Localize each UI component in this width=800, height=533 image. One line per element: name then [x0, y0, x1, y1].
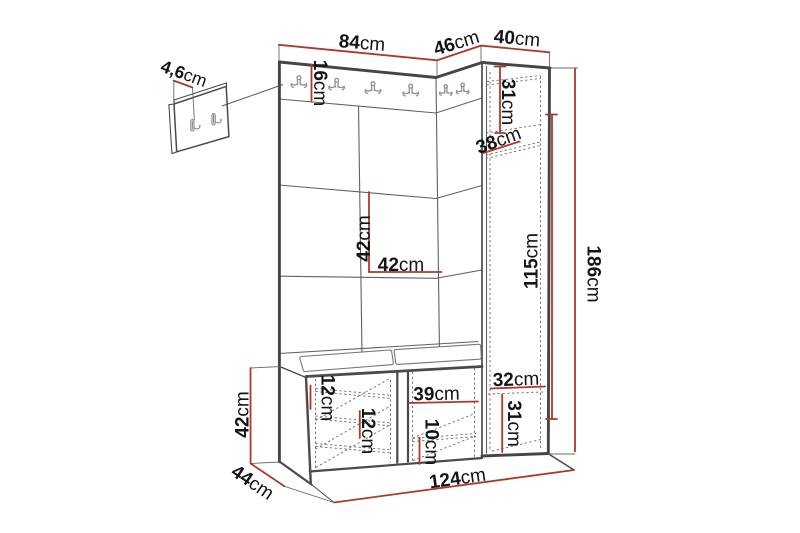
svg-text:31cm: 31cm: [503, 400, 524, 446]
svg-text:39cm: 39cm: [413, 383, 460, 405]
svg-text:42cm: 42cm: [232, 391, 253, 437]
svg-text:12cm: 12cm: [358, 408, 379, 454]
svg-text:16cm: 16cm: [310, 60, 331, 106]
svg-text:186cm: 186cm: [583, 245, 604, 302]
svg-text:32cm: 32cm: [492, 368, 539, 391]
svg-text:42cm: 42cm: [354, 215, 375, 261]
svg-text:84cm: 84cm: [338, 31, 386, 56]
svg-text:31cm: 31cm: [498, 79, 519, 125]
svg-text:12cm: 12cm: [317, 375, 338, 421]
svg-text:40cm: 40cm: [493, 26, 541, 51]
svg-text:42cm: 42cm: [378, 255, 424, 276]
svg-text:115cm: 115cm: [521, 233, 542, 289]
svg-text:10cm: 10cm: [421, 419, 442, 465]
